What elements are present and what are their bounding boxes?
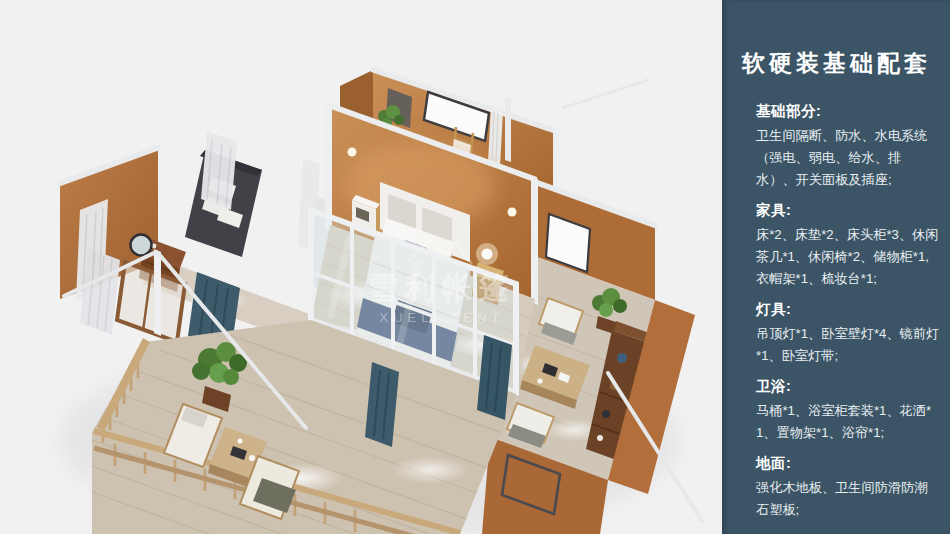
wall-lamp-2 xyxy=(508,208,517,217)
bathroom-post xyxy=(505,97,511,162)
section-basics-body: 卫生间隔断、防水、水电系统（强电、弱电、给水、排水）、开关面板及插座; xyxy=(756,125,940,191)
info-sidebar: 软硬装基础配套 基础部分: 卫生间隔断、防水、水电系统（强电、弱电、给水、排水）… xyxy=(722,0,950,534)
watermark-cn: 雪利帐篷 xyxy=(368,271,516,304)
left-room-corner-post xyxy=(154,249,161,336)
page: 雪利帐篷 XUELI TENT 软硬装基础配套 基础部分: 卫生间隔断、防水、水… xyxy=(0,0,950,534)
sidebar-title: 软硬装基础配套 xyxy=(742,48,940,79)
section-bath-heading: 卫浴: xyxy=(756,376,940,396)
section-furniture: 家具: 床*2、床垫*2、床头柜*3、休闲茶几*1、休闲椅*2、储物柜*1,衣帽… xyxy=(756,200,940,290)
section-basics: 基础部分: 卫生间隔断、防水、水电系统（强电、弱电、给水、排水）、开关面板及插座… xyxy=(756,101,940,191)
section-bath: 卫浴: 马桶*1、浴室柜套装*1、花洒*1、置物架*1、浴帘*1; xyxy=(756,376,940,444)
watermark-en: XUELI TENT xyxy=(380,310,505,325)
section-lighting-heading: 灯具: xyxy=(756,299,940,319)
section-flooring-body: 强化木地板、卫生间防滑防潮石塑板; xyxy=(756,477,940,521)
render-area: 雪利帐篷 XUELI TENT xyxy=(0,0,722,534)
section-lighting-body: 吊顶灯*1、卧室壁灯*4、镜前灯*1、卧室灯带; xyxy=(756,323,940,367)
bedroom-corner-post-right xyxy=(531,176,538,305)
section-furniture-body: 床*2、床垫*2、床头柜*3、休闲茶几*1、休闲椅*2、储物柜*1,衣帽架*1、… xyxy=(756,224,940,290)
deck-light-spot-2 xyxy=(390,456,470,484)
section-lighting: 灯具: 吊顶灯*1、卧室壁灯*4、镜前灯*1、卧室灯带; xyxy=(756,299,940,367)
section-basics-heading: 基础部分: xyxy=(756,101,940,121)
section-flooring-heading: 地面: xyxy=(756,453,940,473)
tent-suite-render: 雪利帐篷 XUELI TENT xyxy=(0,0,722,534)
round-mirror xyxy=(131,235,152,256)
section-furniture-heading: 家具: xyxy=(756,200,940,220)
section-flooring: 地面: 强化木地板、卫生间防滑防潮石塑板; xyxy=(756,453,940,521)
section-bath-body: 马桶*1、浴室柜套装*1、花洒*1、置物架*1、浴帘*1; xyxy=(756,400,940,444)
wall-lamp-1 xyxy=(348,148,357,157)
